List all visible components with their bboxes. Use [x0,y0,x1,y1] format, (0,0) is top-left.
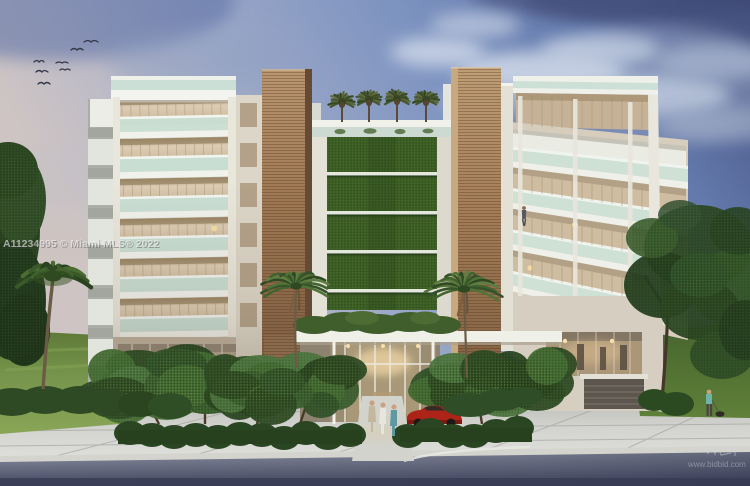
svg-text:www.bidbid.com: www.bidbid.com [687,460,746,469]
svg-text:A11234995 © Miami MLS® 2022: A11234995 © Miami MLS® 2022 [3,238,159,250]
